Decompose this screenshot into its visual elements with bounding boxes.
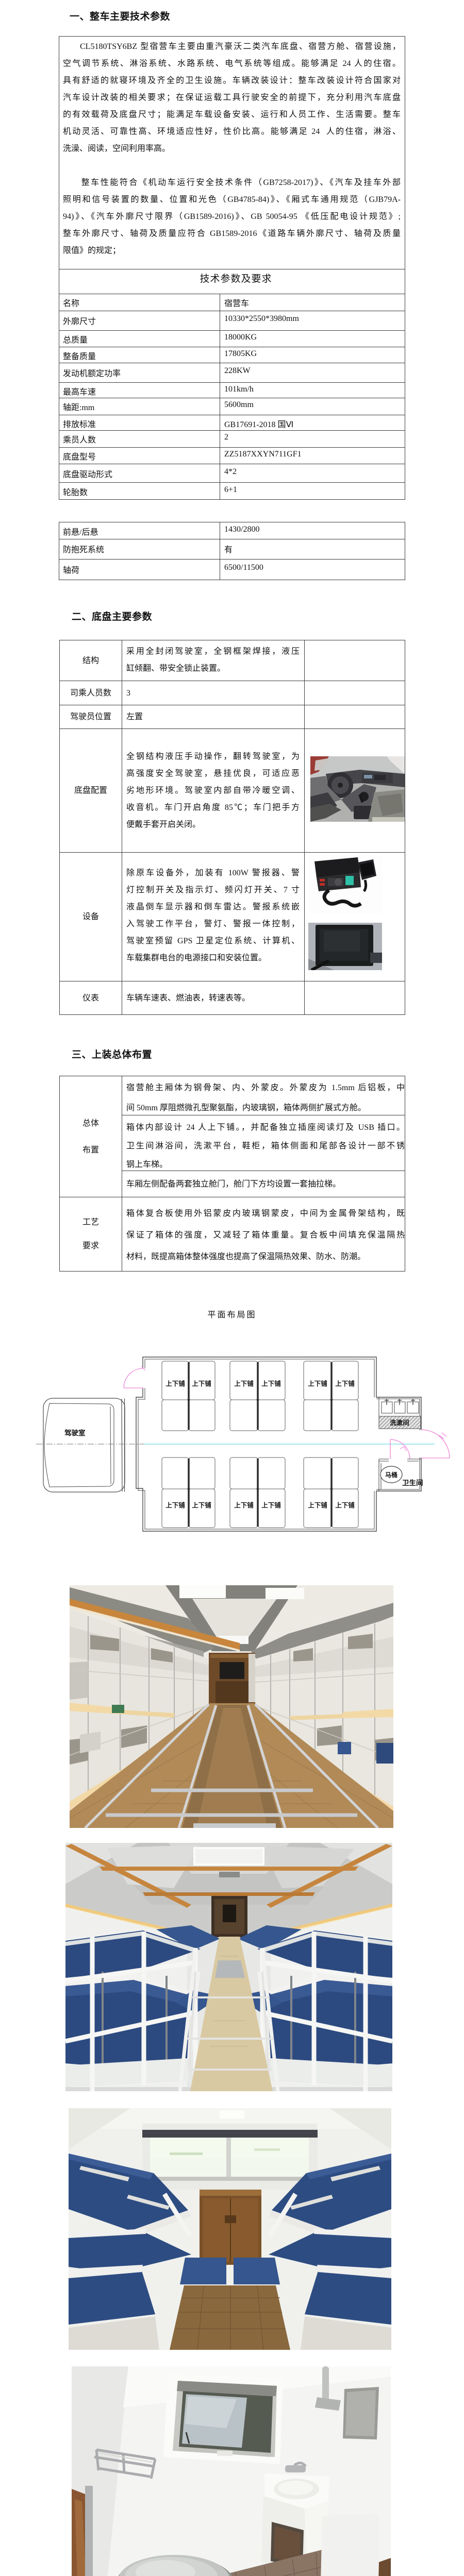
svg-text:上下铺: 上下铺 — [192, 1501, 211, 1509]
svg-text:上下铺: 上下铺 — [192, 1380, 211, 1387]
svg-text:卫生间: 卫生间 — [402, 1479, 423, 1487]
svg-text:上下铺: 上下铺 — [308, 1380, 327, 1387]
svg-text:上下铺: 上下铺 — [308, 1501, 327, 1509]
svg-text:上下铺: 上下铺 — [335, 1501, 355, 1509]
svg-text:洗漱间: 洗漱间 — [390, 1419, 409, 1427]
svg-text:上下铺: 上下铺 — [234, 1380, 254, 1387]
svg-text:马桶: 马桶 — [385, 1471, 397, 1479]
svg-text:上下铺: 上下铺 — [234, 1501, 254, 1509]
svg-text:上下铺: 上下铺 — [165, 1501, 185, 1509]
svg-text:上下铺: 上下铺 — [165, 1380, 185, 1387]
svg-text:上下铺: 上下铺 — [261, 1501, 281, 1509]
svg-text:上下铺: 上下铺 — [261, 1380, 281, 1387]
svg-text:上下铺: 上下铺 — [335, 1380, 355, 1387]
svg-text:驾驶室: 驾驶室 — [64, 1429, 86, 1437]
